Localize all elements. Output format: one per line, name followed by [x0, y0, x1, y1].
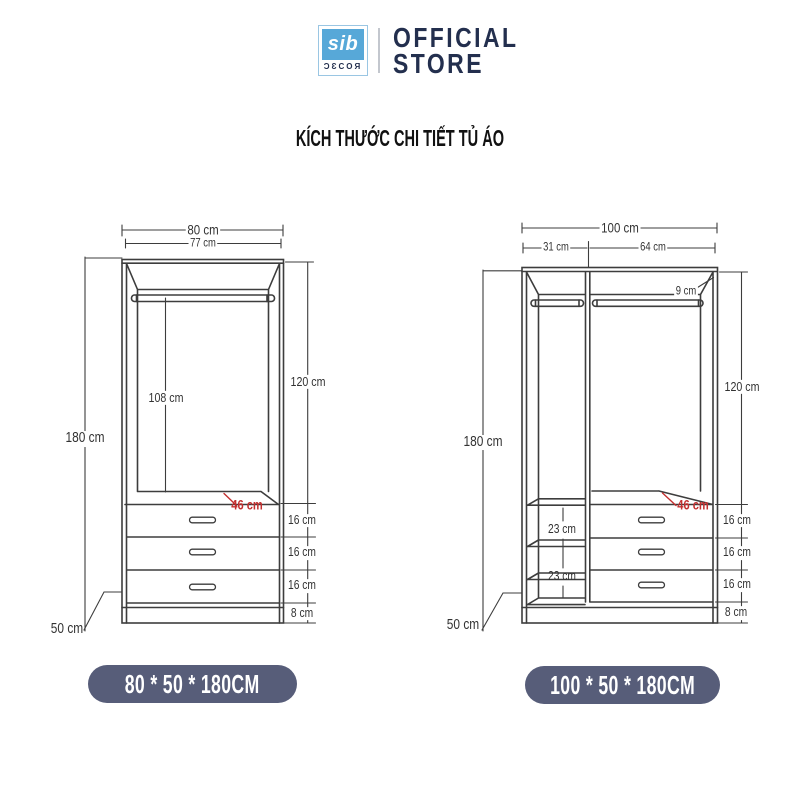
left-base-height-label: 8 cm: [289, 607, 314, 621]
right-width-outer-label: 100 cm: [599, 220, 640, 235]
right-drawer-handle-2: [639, 549, 665, 555]
right-size-badge: 100 * 50 * 180CM: [525, 666, 720, 704]
left-width-inner-label: 77 cm: [189, 237, 218, 250]
right-rail-gap-label: 9 cm: [674, 286, 698, 299]
right-depth-label: 50 cm: [445, 618, 481, 634]
right-width-left-label: 31 cm: [542, 242, 571, 255]
right-upper-height-label: 120 cm: [722, 380, 760, 394]
left-upper-height-label: 120 cm: [289, 375, 327, 389]
left-depth-label: 50 cm: [49, 622, 85, 638]
right-shelf-gap-label-1: 23 cm: [546, 523, 577, 537]
left-drawer-handle-2: [190, 549, 216, 555]
left-drawer-height-label-1: 16 cm: [286, 514, 317, 528]
right-hanging-rail-right: [593, 300, 704, 306]
right-drawer-height-label-1: 16 cm: [721, 514, 752, 528]
right-shelf-gap-label-2: 23 cm: [546, 570, 577, 584]
right-top-depth-label: 46 cm: [676, 499, 711, 514]
left-hanging-height-label: 108 cm: [147, 391, 185, 405]
left-size-badge: 80 * 50 * 180CM: [88, 665, 297, 703]
left-drawer-height-label-2: 16 cm: [286, 546, 317, 560]
left-drawer-handle-1: [190, 517, 216, 523]
right-drawer-handle-3: [639, 582, 665, 588]
left-drawer-height-label-3: 16 cm: [286, 579, 317, 593]
right-width-right-label: 64 cm: [638, 242, 667, 255]
right-height-label: 180 cm: [462, 435, 504, 451]
left-width-outer-label: 80 cm: [185, 222, 220, 237]
right-wardrobe-lines: [482, 223, 748, 631]
left-drawer-handle-3: [190, 584, 216, 590]
right-drawer-height-label-3: 16 cm: [721, 578, 752, 592]
right-drawer-handle-1: [639, 517, 665, 523]
left-hanging-rail: [132, 295, 275, 302]
left-top-depth-label: 46 cm: [230, 499, 265, 514]
right-drawer-height-label-2: 16 cm: [721, 546, 752, 560]
right-base-height-label: 8 cm: [723, 606, 748, 620]
left-cabinet-body: [122, 260, 284, 624]
left-height-label: 180 cm: [64, 431, 106, 447]
product-dimension-image: sib ƆƐCOЯ OFFICIAL STORE KÍCH THƯỚC CHI …: [0, 0, 800, 800]
left-wardrobe-lines: [84, 225, 316, 631]
